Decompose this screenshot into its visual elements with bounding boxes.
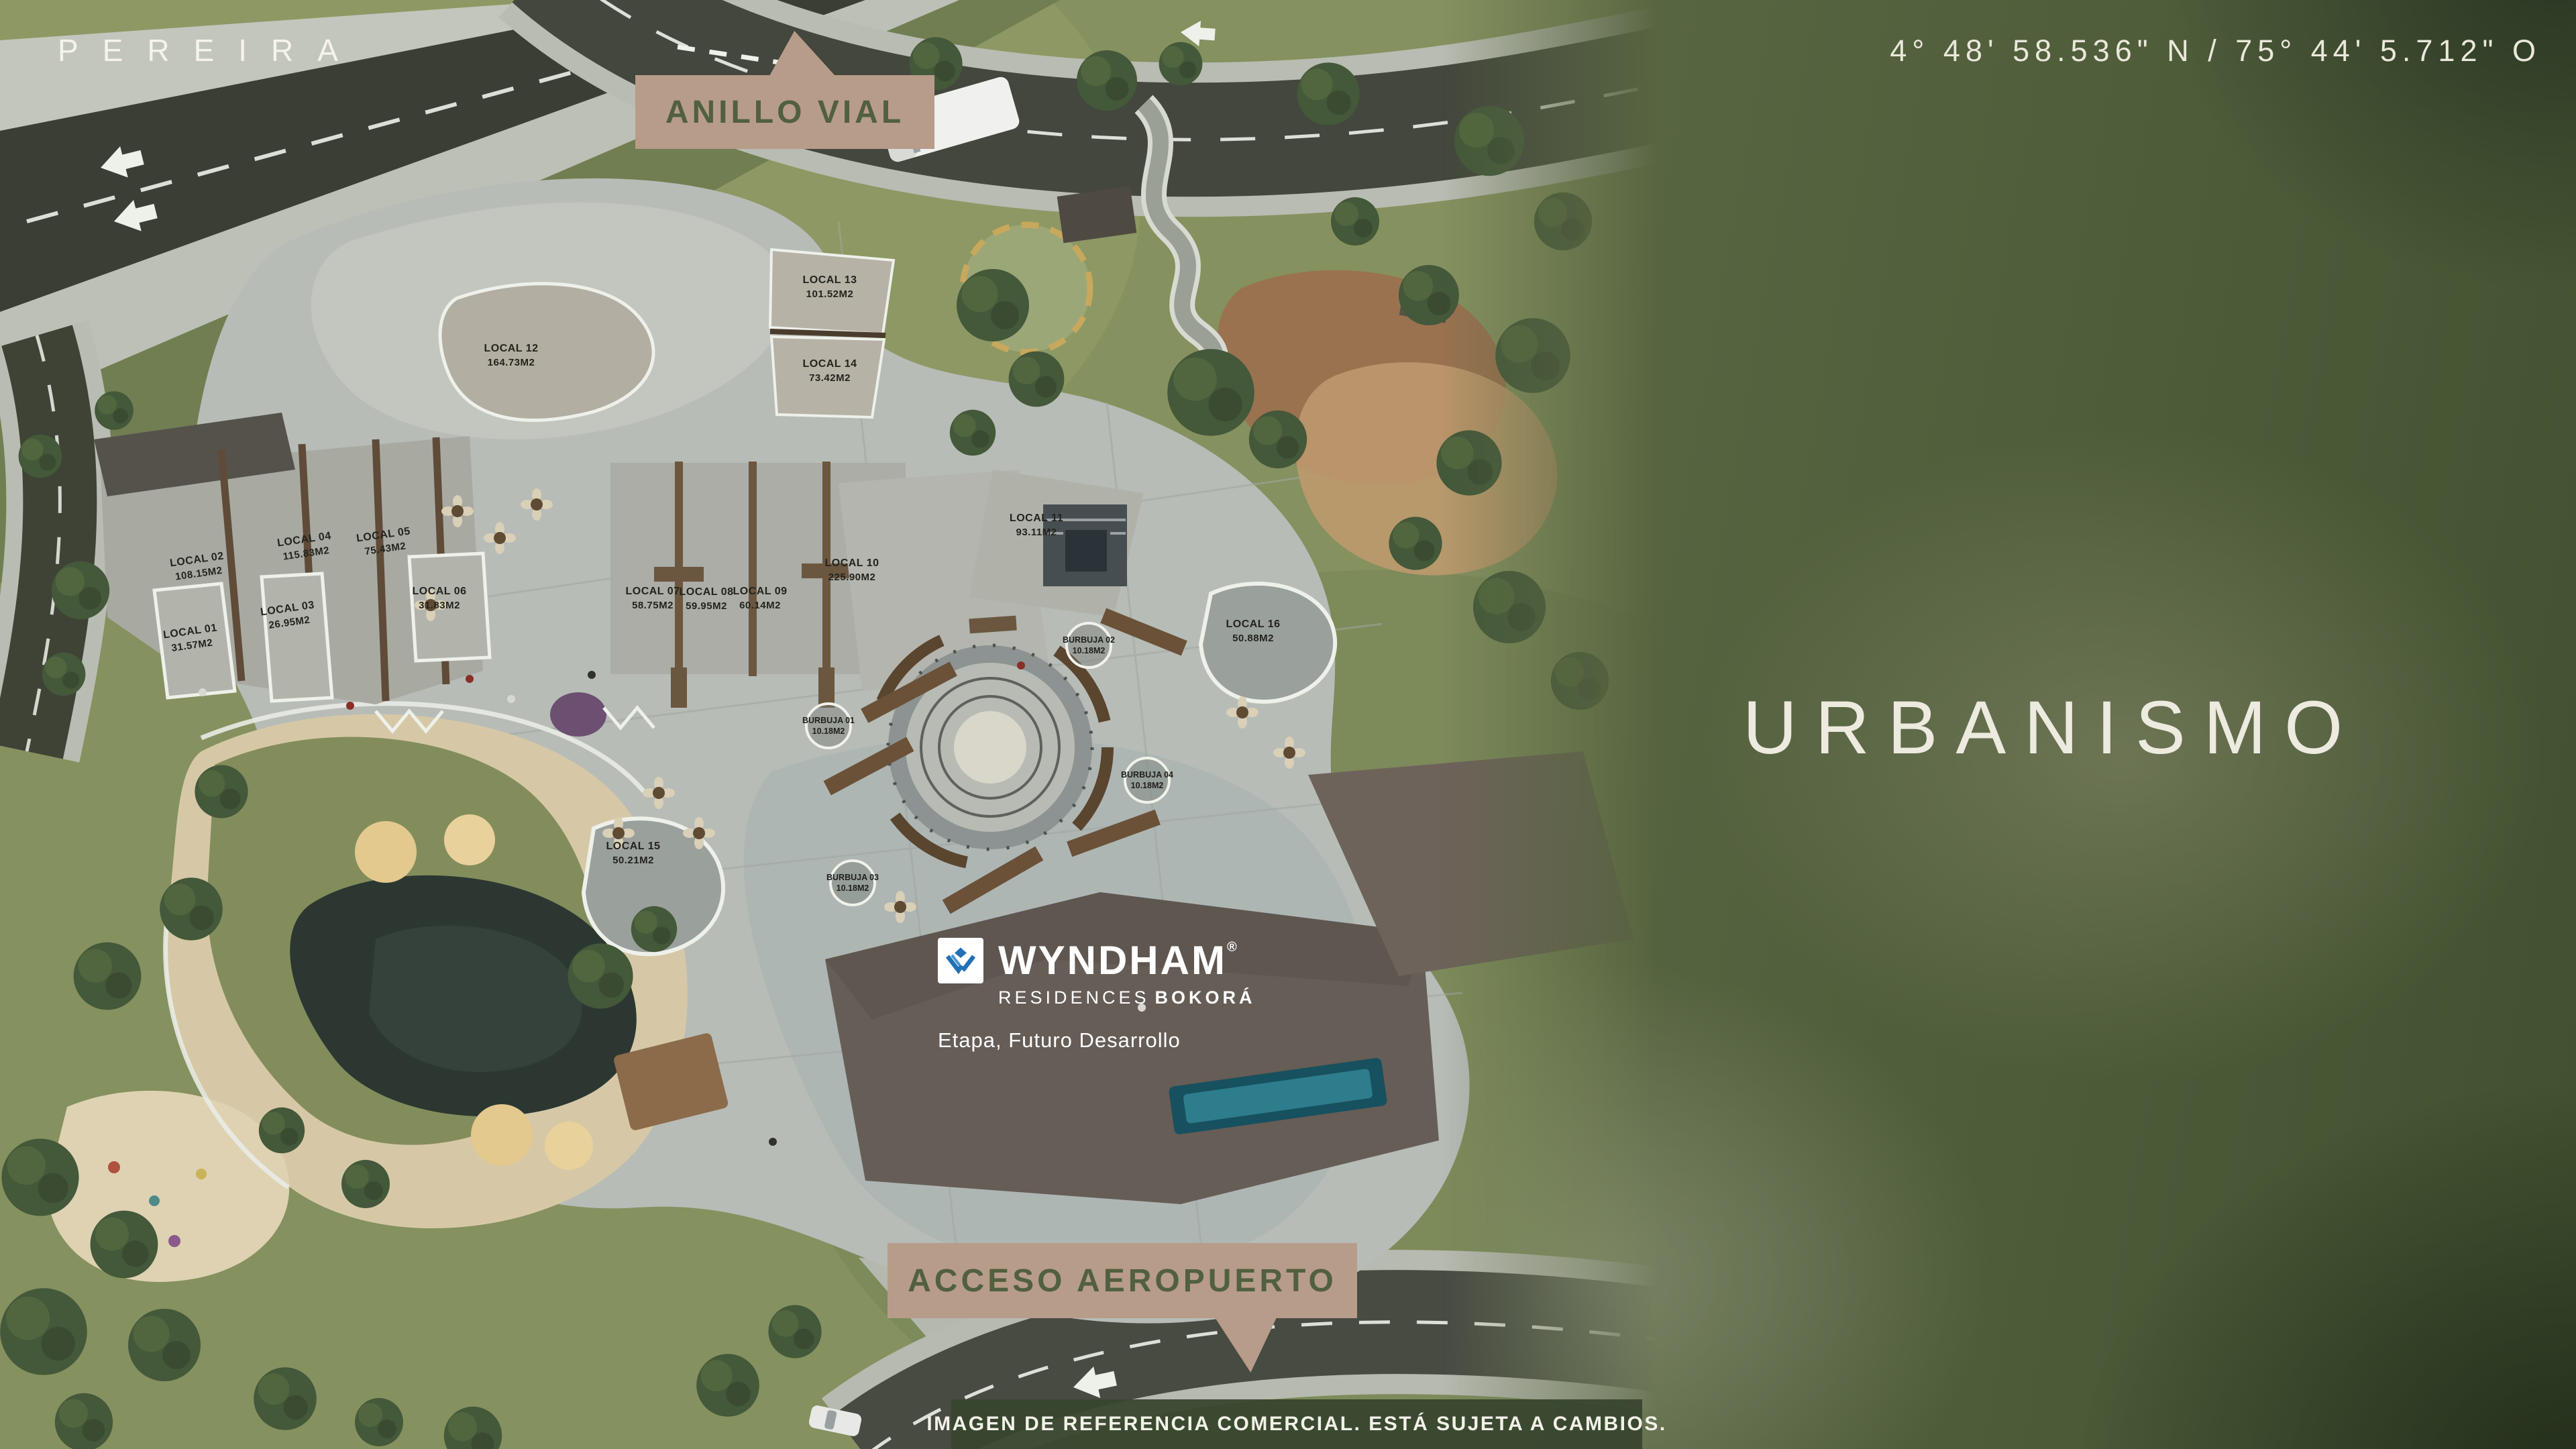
- map-label-local-08: LOCAL 0859.95M2: [679, 586, 733, 612]
- map-label-local-05: LOCAL 0575.43M2: [356, 525, 413, 559]
- geo-coordinates: 4° 48' 58.536" N / 75° 44' 5.712" O: [1890, 34, 2541, 68]
- map-label-burbuja-04: BURBUJA 0410.18M2: [1124, 757, 1171, 804]
- city-label: PEREIRA: [58, 32, 362, 68]
- brand-subtitle: RESIDENCESBOKORÁ: [998, 987, 1256, 1008]
- map-label-local-16: LOCAL 1650.88M2: [1226, 618, 1280, 645]
- disclaimer-bar: IMAGEN DE REFERENCIA COMERCIAL. ESTÁ SUJ…: [951, 1399, 1642, 1449]
- map-label-local-09: LOCAL 0960.14M2: [733, 585, 787, 612]
- map-label-local-14: LOCAL 1473.42M2: [802, 358, 857, 384]
- callout-airport-access: ACCESO AEROPUERTO: [888, 1243, 1357, 1318]
- phase-label: Etapa, Futuro Desarrollo: [938, 1028, 1256, 1053]
- map-label-local-12: LOCAL 12164.73M2: [484, 342, 538, 369]
- map-label-local-11: LOCAL 1193.11M2: [1010, 512, 1063, 539]
- map-label-local-06: LOCAL 0631.83M2: [412, 585, 466, 612]
- brand-name: WYNDHAM®: [998, 941, 1239, 981]
- map-label-local-10: LOCAL 10225.90M2: [824, 557, 879, 584]
- map-label-local-03: LOCAL 0326.95M2: [260, 598, 317, 633]
- map-label-local-01: LOCAL 0131.57M2: [162, 621, 220, 655]
- map-label-local-02: LOCAL 02108.15M2: [169, 549, 227, 584]
- map-label-burbuja-03: BURBUJA 0310.18M2: [829, 859, 876, 906]
- section-title: URBANISMO: [1743, 684, 2361, 771]
- callout-ring-road: ANILLO VIAL: [635, 75, 934, 149]
- map-label-burbuja-01: BURBUJA 0110.18M2: [805, 702, 852, 749]
- map-label-local-15: LOCAL 1550.21M2: [606, 840, 660, 867]
- map-label-local-07: LOCAL 0758.75M2: [625, 585, 680, 612]
- wyndham-logo-icon: [938, 938, 983, 983]
- map-label-local-04: LOCAL 04115.83M2: [276, 529, 334, 563]
- wyndham-brand-block: WYNDHAM® RESIDENCESBOKORÁ Etapa, Futuro …: [938, 938, 1256, 1053]
- map-label-burbuja-02: BURBUJA 0210.18M2: [1065, 622, 1112, 669]
- map-label-local-13: LOCAL 13101.52M2: [802, 274, 857, 301]
- urbanismo-slide: LOCAL 0131.57M2 LOCAL 02108.15M2 LOCAL 0…: [0, 0, 2576, 1449]
